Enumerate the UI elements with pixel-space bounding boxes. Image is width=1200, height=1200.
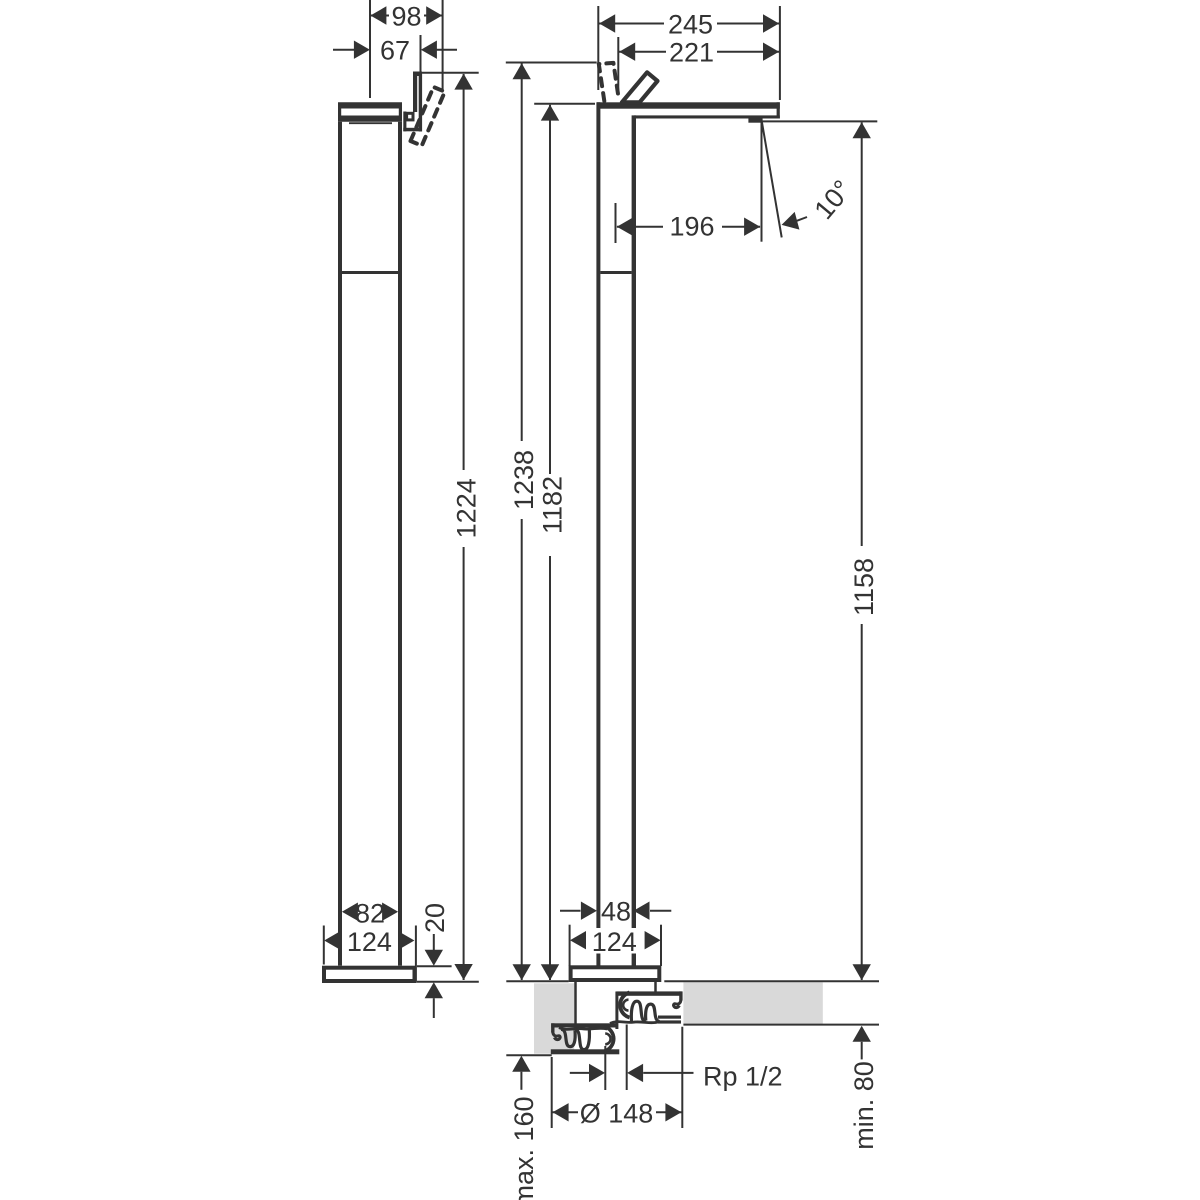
- svg-text:Ø 148: Ø 148: [580, 1098, 654, 1128]
- svg-text:1182: 1182: [538, 476, 568, 534]
- svg-text:max. 160: max. 160: [509, 1096, 539, 1200]
- svg-text:98: 98: [391, 2, 421, 32]
- svg-text:245: 245: [668, 10, 713, 40]
- svg-text:124: 124: [347, 927, 392, 957]
- svg-text:1238: 1238: [509, 450, 539, 510]
- svg-text:196: 196: [669, 212, 714, 242]
- svg-text:221: 221: [669, 38, 714, 68]
- svg-text:min. 80: min. 80: [849, 1061, 879, 1150]
- svg-text:Rp 1/2: Rp 1/2: [703, 1062, 783, 1092]
- svg-text:48: 48: [601, 897, 631, 927]
- svg-text:67: 67: [380, 36, 410, 66]
- svg-text:82: 82: [355, 899, 385, 929]
- svg-text:1158: 1158: [849, 558, 879, 616]
- svg-text:20: 20: [420, 903, 450, 933]
- svg-text:1224: 1224: [452, 478, 482, 538]
- svg-text:124: 124: [592, 927, 637, 957]
